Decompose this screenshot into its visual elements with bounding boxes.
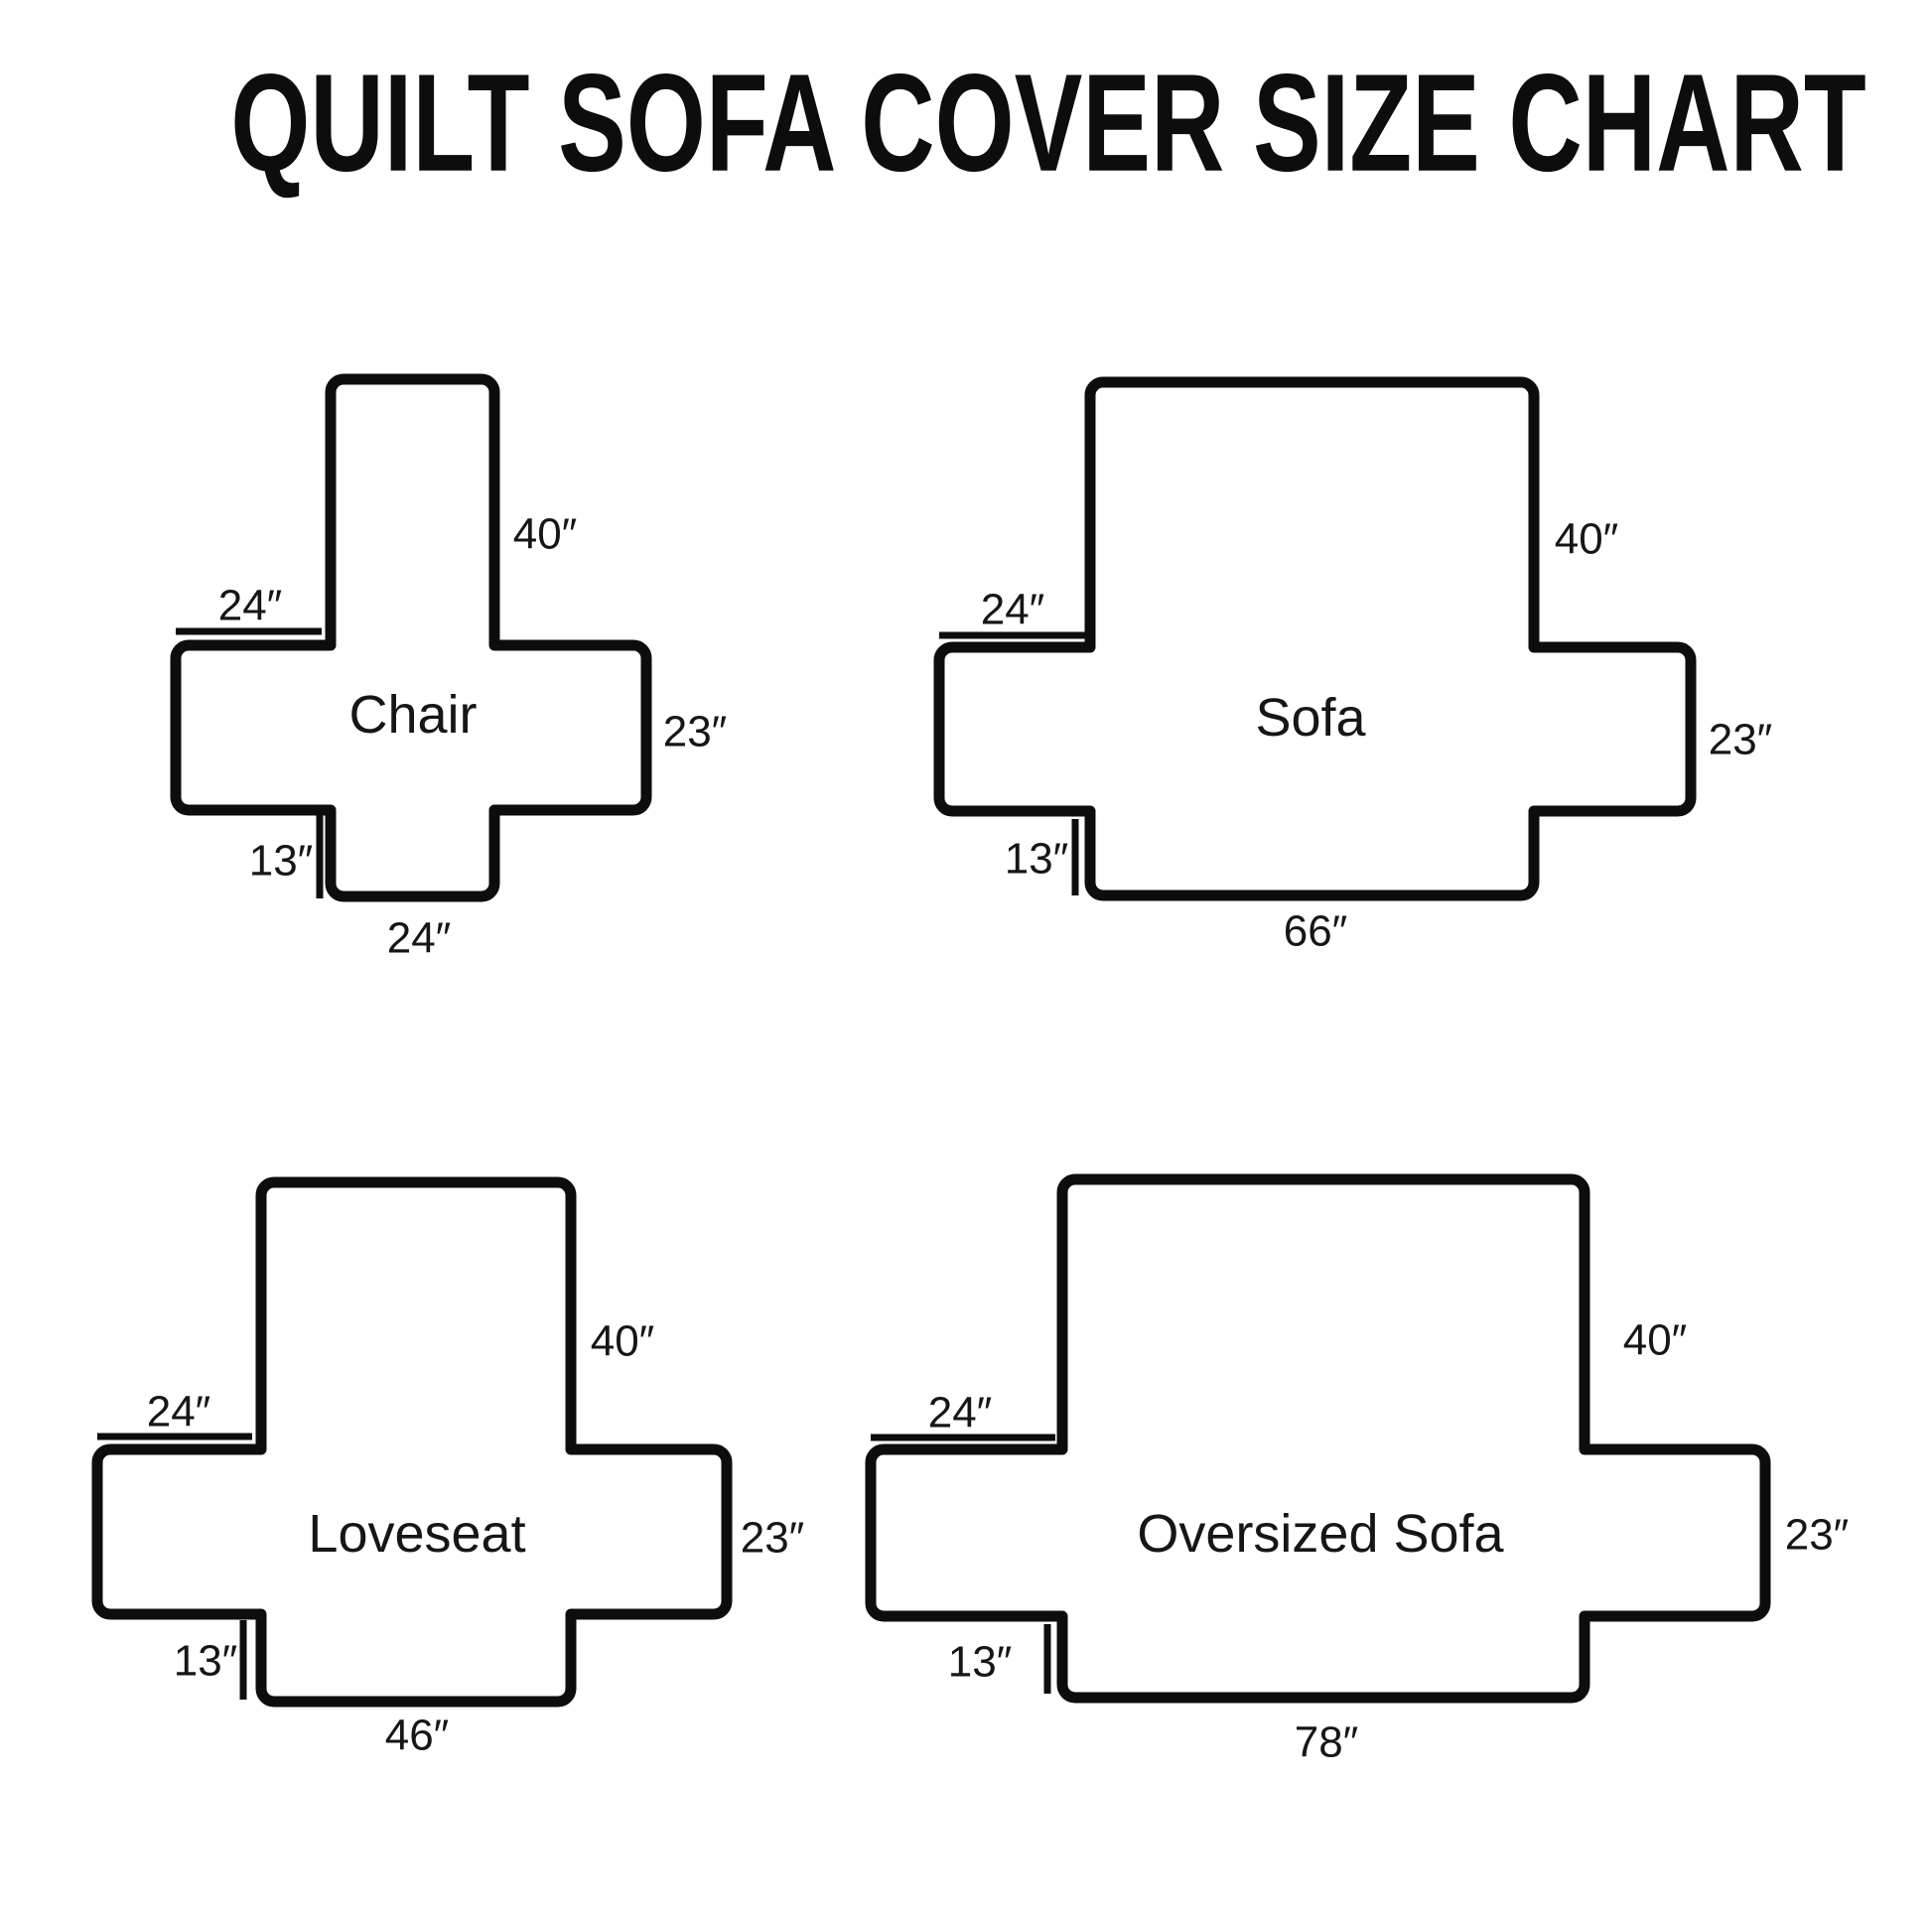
chair-back-height-label: 40″	[513, 510, 578, 559]
loveseat-outline	[97, 1182, 727, 1702]
oversized-sofa-diagram: Oversized Sofa 40″ 24″ 23″ 13″ 78″	[871, 1179, 1849, 1767]
size-chart-canvas: Chair 40″ 24″ 23″ 13″ 24″ Sofa 40″ 24″ 2…	[0, 0, 1932, 1918]
oversized-sofa-arm-width-label: 24″	[928, 1389, 993, 1438]
size-chart-page: QUILT SOFA COVER SIZE CHART Chair 40″ 24…	[0, 0, 1932, 1918]
sofa-name-label: Sofa	[1255, 688, 1366, 748]
page-title: QUILT SOFA COVER SIZE CHART	[0, 48, 1932, 198]
chair-side-depth-label: 23″	[663, 708, 728, 756]
page-title-text: QUILT SOFA COVER SIZE CHART	[230, 43, 1865, 202]
loveseat-name-label: Loveseat	[308, 1504, 525, 1564]
oversized-sofa-bottom-width-label: 78″	[1295, 1718, 1359, 1767]
sofa-back-height-label: 40″	[1555, 515, 1619, 564]
sofa-skirt-drop-label: 13″	[1005, 835, 1069, 884]
chair-diagram: Chair 40″ 24″ 23″ 13″ 24″	[176, 379, 727, 963]
loveseat-arm-width-label: 24″	[147, 1388, 211, 1437]
chair-name-label: Chair	[348, 685, 477, 745]
oversized-sofa-side-depth-label: 23″	[1785, 1511, 1850, 1560]
chair-arm-width-label: 24″	[218, 582, 283, 630]
loveseat-diagram: Loveseat 40″ 24″ 23″ 13″ 46″	[97, 1182, 804, 1760]
sofa-side-depth-label: 23″	[1709, 716, 1773, 764]
chair-bottom-width-label: 24″	[387, 914, 452, 963]
chair-skirt-drop-label: 13″	[249, 837, 314, 886]
oversized-sofa-name-label: Oversized Sofa	[1137, 1504, 1504, 1564]
oversized-sofa-back-height-label: 40″	[1623, 1316, 1688, 1365]
loveseat-back-height-label: 40″	[591, 1317, 655, 1366]
sofa-arm-width-label: 24″	[981, 586, 1045, 634]
sofa-bottom-width-label: 66″	[1284, 907, 1348, 956]
loveseat-side-depth-label: 23″	[741, 1514, 805, 1563]
oversized-sofa-skirt-drop-label: 13″	[948, 1638, 1013, 1687]
loveseat-bottom-width-label: 46″	[385, 1712, 450, 1760]
chair-outline	[176, 379, 646, 896]
sofa-diagram: Sofa 40″ 24″ 23″ 13″ 66″	[939, 382, 1772, 956]
loveseat-skirt-drop-label: 13″	[174, 1637, 238, 1686]
